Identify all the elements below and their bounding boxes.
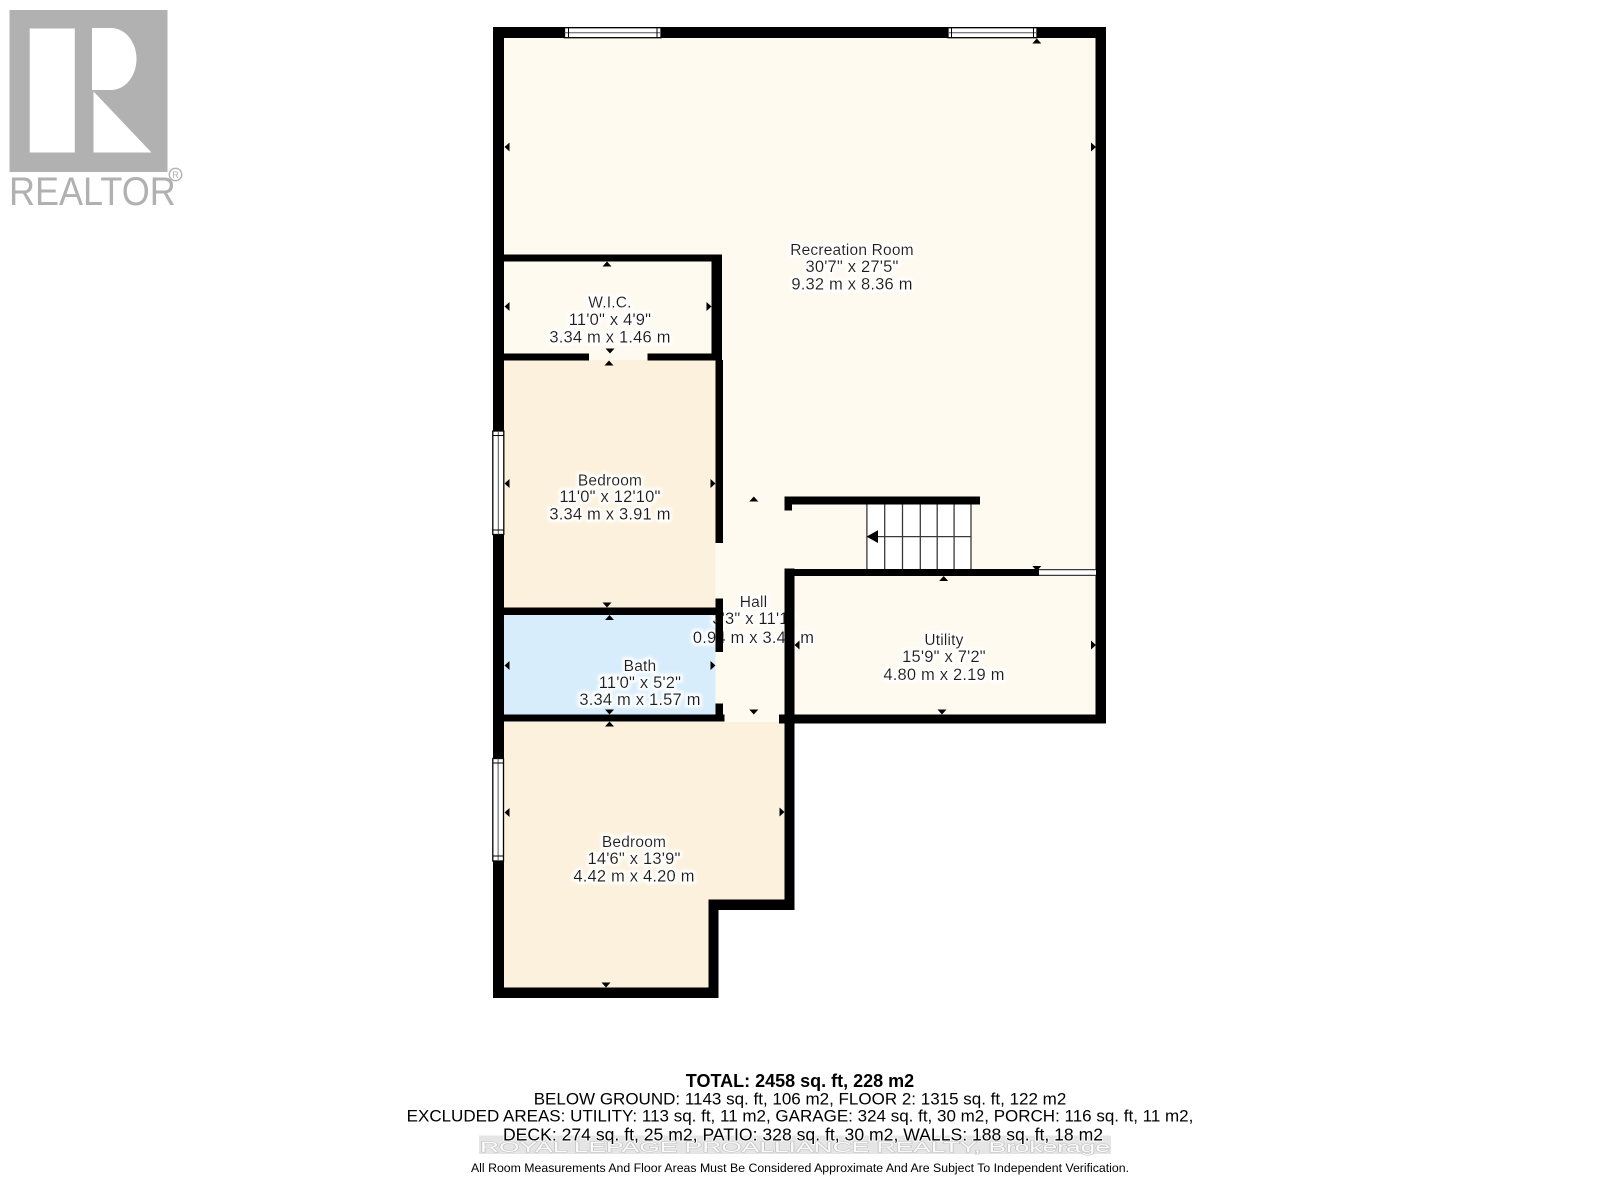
svg-text:14'6" x 13'9": 14'6" x 13'9" (587, 850, 680, 868)
svg-text:3.34 m x 1.46 m: 3.34 m x 1.46 m (549, 329, 670, 347)
svg-text:Hall: Hall (740, 594, 768, 611)
svg-text:15'9" x 7'2": 15'9" x 7'2" (902, 648, 986, 666)
svg-text:Utility: Utility (924, 632, 963, 649)
svg-text:11'0" x 4'9": 11'0" x 4'9" (569, 311, 652, 329)
svg-text:Recreation Room: Recreation Room (790, 242, 914, 259)
svg-text:Bath: Bath (624, 658, 657, 675)
svg-text:REALTOR: REALTOR (9, 170, 176, 214)
svg-text:EXCLUDED AREAS: UTILITY: 113 s: EXCLUDED AREAS: UTILITY: 113 sq. ft, 11 … (407, 1107, 1194, 1126)
svg-text:Bedroom: Bedroom (602, 834, 666, 851)
svg-text:4.80 m x 2.19 m: 4.80 m x 2.19 m (883, 666, 1004, 684)
svg-text:4.42 m x 4.20 m: 4.42 m x 4.20 m (573, 868, 694, 886)
svg-text:3.34 m x 3.91 m: 3.34 m x 3.91 m (549, 506, 670, 524)
svg-text:3'3" x 11'1": 3'3" x 11'1" (712, 610, 795, 628)
svg-text:R: R (172, 170, 179, 180)
svg-text:All Room Measurements And Floo: All Room Measurements And Floor Areas Mu… (471, 1161, 1129, 1175)
svg-text:9.32 m x 8.36 m: 9.32 m x 8.36 m (791, 276, 912, 294)
svg-text:11'0" x 5'2": 11'0" x 5'2" (599, 674, 682, 692)
svg-text:3.34 m x 1.57 m: 3.34 m x 1.57 m (579, 691, 700, 709)
svg-text:11'0" x 12'10": 11'0" x 12'10" (559, 488, 660, 506)
svg-text:DECK: 274 sq. ft, 25 m2, PATIO: DECK: 274 sq. ft, 25 m2, PATIO: 328 sq. … (503, 1125, 1103, 1145)
svg-text:TOTAL: 2458 sq. ft, 228 m2: TOTAL: 2458 sq. ft, 228 m2 (686, 1071, 914, 1091)
svg-text:30'7" x 27'5": 30'7" x 27'5" (805, 258, 898, 276)
svg-text:Bedroom: Bedroom (578, 473, 642, 490)
svg-text:W.I.C.: W.I.C. (588, 295, 631, 312)
